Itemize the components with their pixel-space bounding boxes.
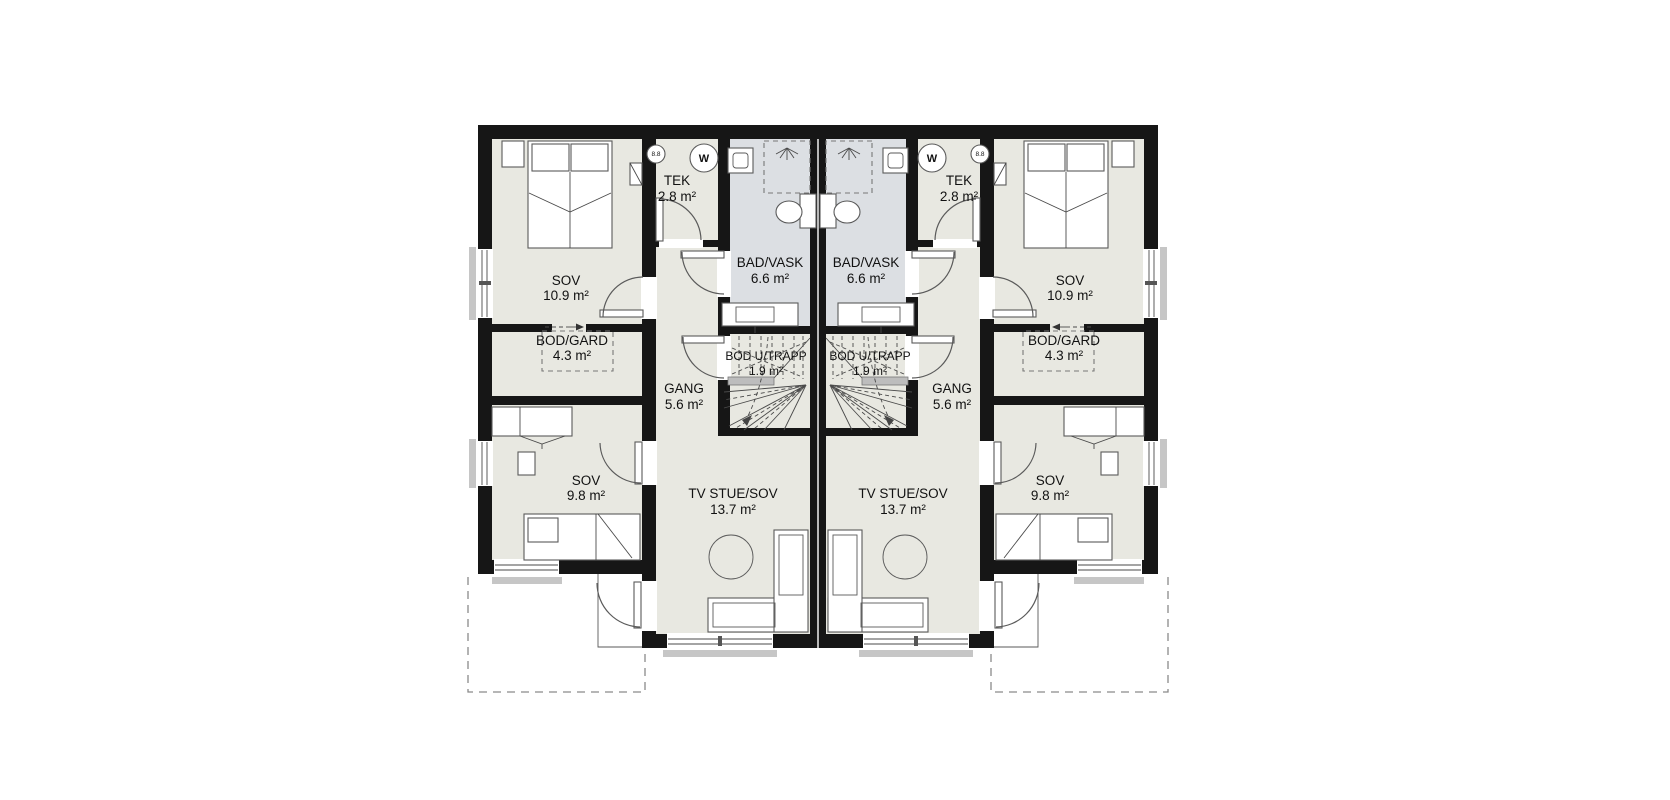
room-area-bod-u-trapp-right: 1.9 m² <box>853 364 887 378</box>
floor-plan-drawing: SOV 10.9 m² BOD/GARD 4.3 m² TEK 2.8 m² B… <box>0 0 1670 800</box>
room-area-bod-gard-left: 4.3 m² <box>553 348 592 363</box>
vanity <box>722 303 798 326</box>
shelf <box>518 452 535 475</box>
room-area-bad-vask-right: 6.6 m² <box>847 271 886 286</box>
stair-landing-edge <box>728 377 774 385</box>
room-label-gang-left: GANG <box>664 381 704 396</box>
vent-label-right: 8.8 <box>975 151 984 158</box>
window-sov-small-south <box>492 559 562 584</box>
room-label-sov-small-left: SOV <box>572 473 601 488</box>
washing-machine-label-left: W <box>699 153 710 165</box>
room-label-tek-right: TEK <box>946 173 972 188</box>
room-area-tv-stue-left: 13.7 m² <box>710 502 756 517</box>
room-area-sov-large-left: 10.9 m² <box>543 288 589 303</box>
room-area-sov-small-left: 9.8 m² <box>567 488 606 503</box>
room-label-sov-large-left: SOV <box>552 273 581 288</box>
pillow <box>571 144 608 171</box>
room-area-sov-large-right: 10.9 m² <box>1047 288 1093 303</box>
room-label-bad-vask-left: BAD/VASK <box>737 255 804 270</box>
room-label-tv-stue-left: TV STUE/SOV <box>688 486 777 501</box>
unit-right-geometry <box>818 125 1168 692</box>
room-label-bod-gard-left: BOD/GARD <box>536 333 608 348</box>
window-sov-large <box>469 247 493 320</box>
room-area-bod-gard-right: 4.3 m² <box>1045 348 1084 363</box>
room-label-bad-vask-right: BAD/VASK <box>833 255 900 270</box>
room-label-sov-large-right: SOV <box>1056 273 1085 288</box>
toilet-icon <box>776 201 802 223</box>
room-label-tv-stue-right: TV STUE/SOV <box>858 486 947 501</box>
room-label-sov-small-right: SOV <box>1036 473 1065 488</box>
washing-machine-label-right: W <box>927 153 938 165</box>
nightstand <box>502 141 524 167</box>
floor-drain-icon <box>728 148 753 173</box>
pillow <box>532 144 569 171</box>
room-area-gang-right: 5.6 m² <box>933 397 972 412</box>
room-area-tek-right: 2.8 m² <box>940 189 979 204</box>
room-area-gang-left: 5.6 m² <box>665 397 704 412</box>
vent-label-left: 8.8 <box>651 151 660 158</box>
room-label-bod-u-trapp-right: BOD U/TRAPP <box>829 349 910 363</box>
window-tv-stue <box>663 633 777 657</box>
room-label-bod-u-trapp-left: BOD U/TRAPP <box>725 349 806 363</box>
room-area-bod-u-trapp-left: 1.9 m² <box>749 364 783 378</box>
room-area-tek-left: 2.8 m² <box>658 189 697 204</box>
pillow <box>528 518 558 542</box>
room-label-gang-right: GANG <box>932 381 972 396</box>
room-area-tv-stue-right: 13.7 m² <box>880 502 926 517</box>
room-label-bod-gard-right: BOD/GARD <box>1028 333 1100 348</box>
window-sov-small <box>469 439 493 488</box>
room-area-bad-vask-left: 6.6 m² <box>751 271 790 286</box>
floor-plan-canvas: SOV 10.9 m² BOD/GARD 4.3 m² TEK 2.8 m² B… <box>0 0 1670 800</box>
room-area-sov-small-right: 9.8 m² <box>1031 488 1070 503</box>
unit-left-geometry <box>468 125 818 692</box>
wardrobe <box>492 407 572 436</box>
room-label-tek-left: TEK <box>664 173 690 188</box>
